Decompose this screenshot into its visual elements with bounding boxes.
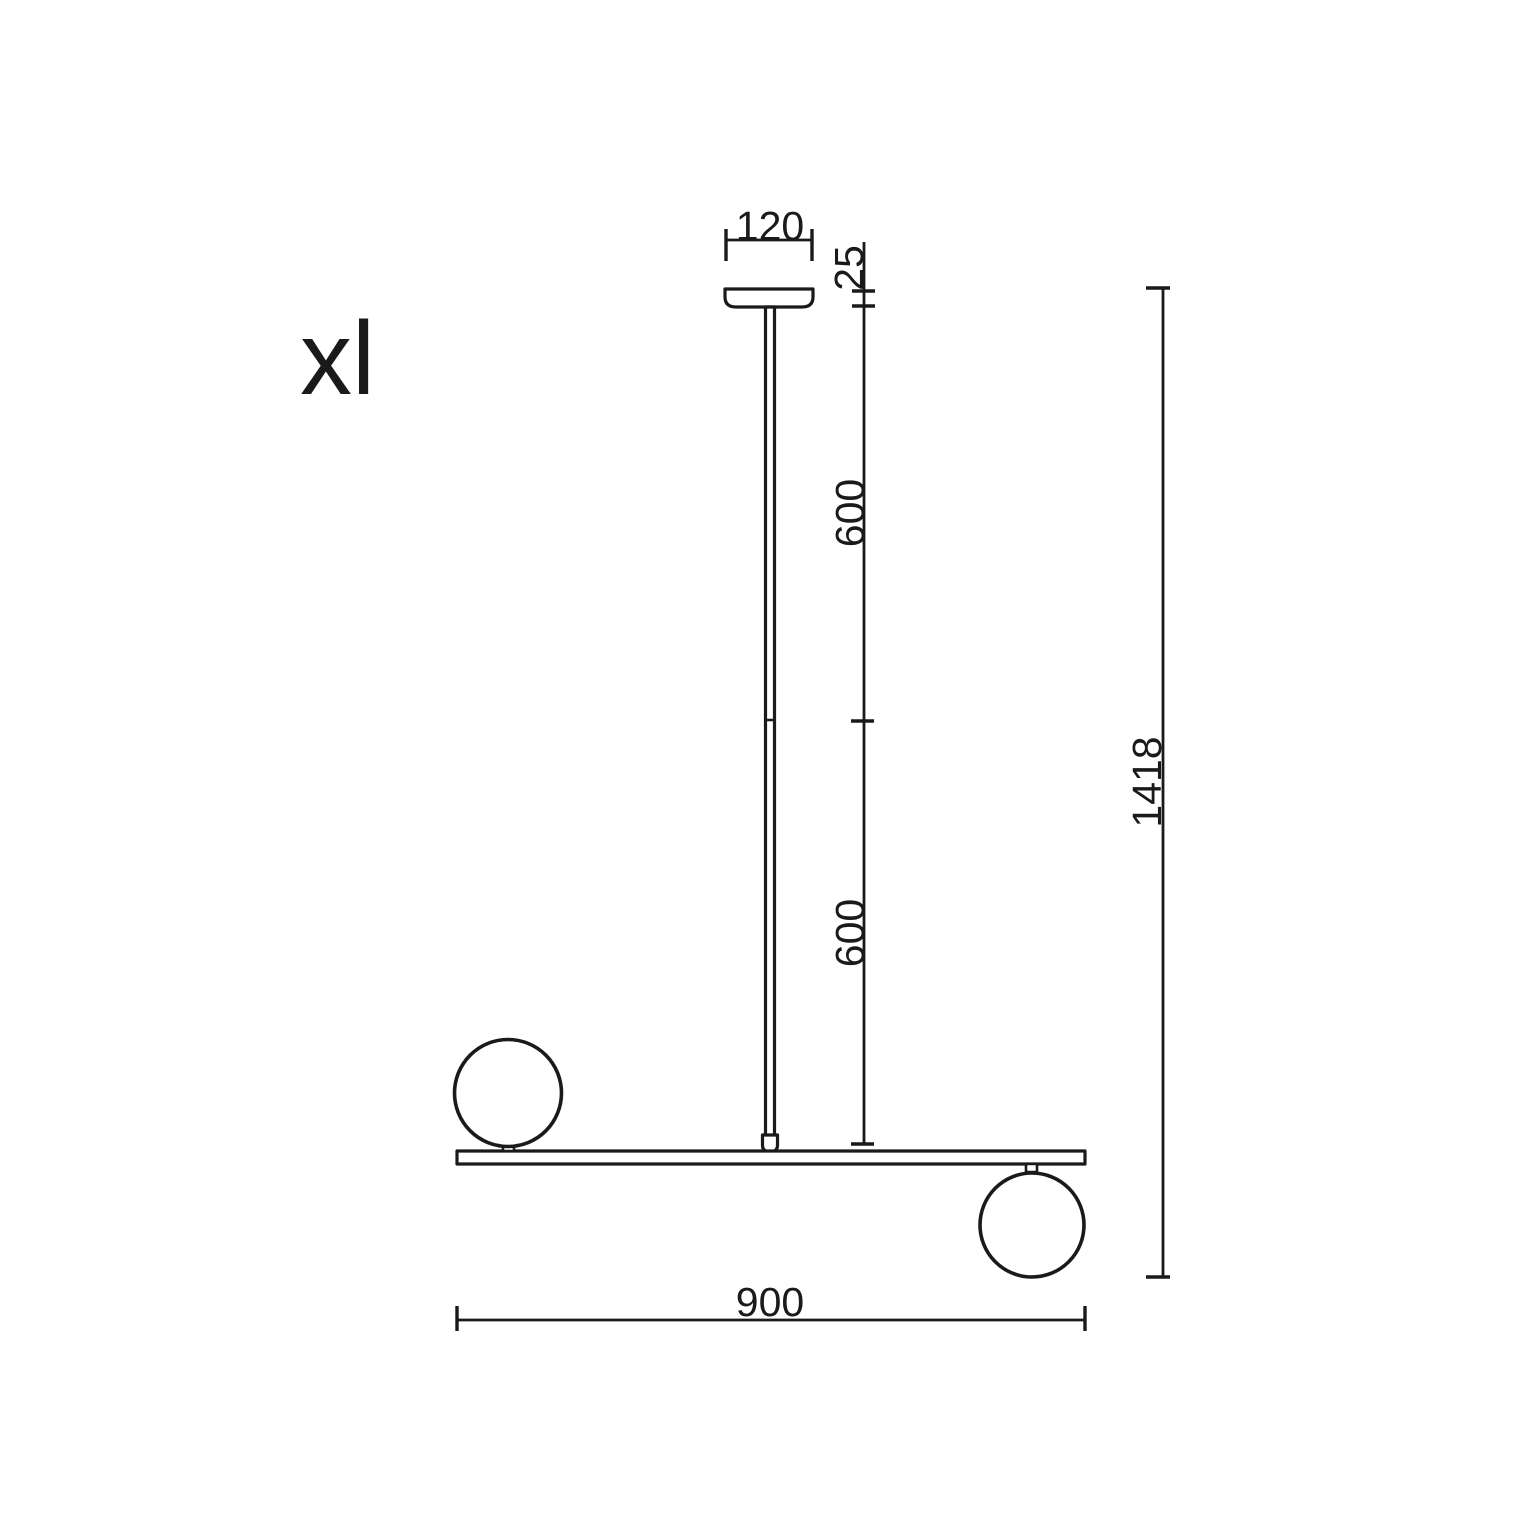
dim-stem-lower-value: 600 bbox=[827, 899, 873, 967]
dim-stem-upper-value: 600 bbox=[827, 479, 873, 547]
dim-canopy-height-value: 25 bbox=[826, 245, 872, 291]
ceiling-canopy bbox=[725, 289, 813, 307]
horizontal-bar bbox=[457, 1151, 1085, 1164]
dim-bar-length-value: 900 bbox=[736, 1279, 804, 1325]
suspension-rod bbox=[766, 307, 775, 1137]
dim-total-height-value: 1418 bbox=[1124, 736, 1170, 827]
technical-drawing-canvas: xl 120 25 600 600 1418 900 bbox=[0, 0, 1540, 1540]
variant-label: xl bbox=[300, 301, 375, 417]
dimension-lines bbox=[457, 229, 1170, 1331]
right-globe-stem bbox=[1026, 1164, 1037, 1172]
pendant-lamp-dimension-drawing: xl 120 25 600 600 1418 900 bbox=[0, 0, 1540, 1540]
left-globe bbox=[455, 1040, 562, 1147]
dim-canopy-width-value: 120 bbox=[736, 203, 804, 249]
fixture-outline bbox=[455, 289, 1086, 1277]
right-globe bbox=[980, 1173, 1084, 1277]
